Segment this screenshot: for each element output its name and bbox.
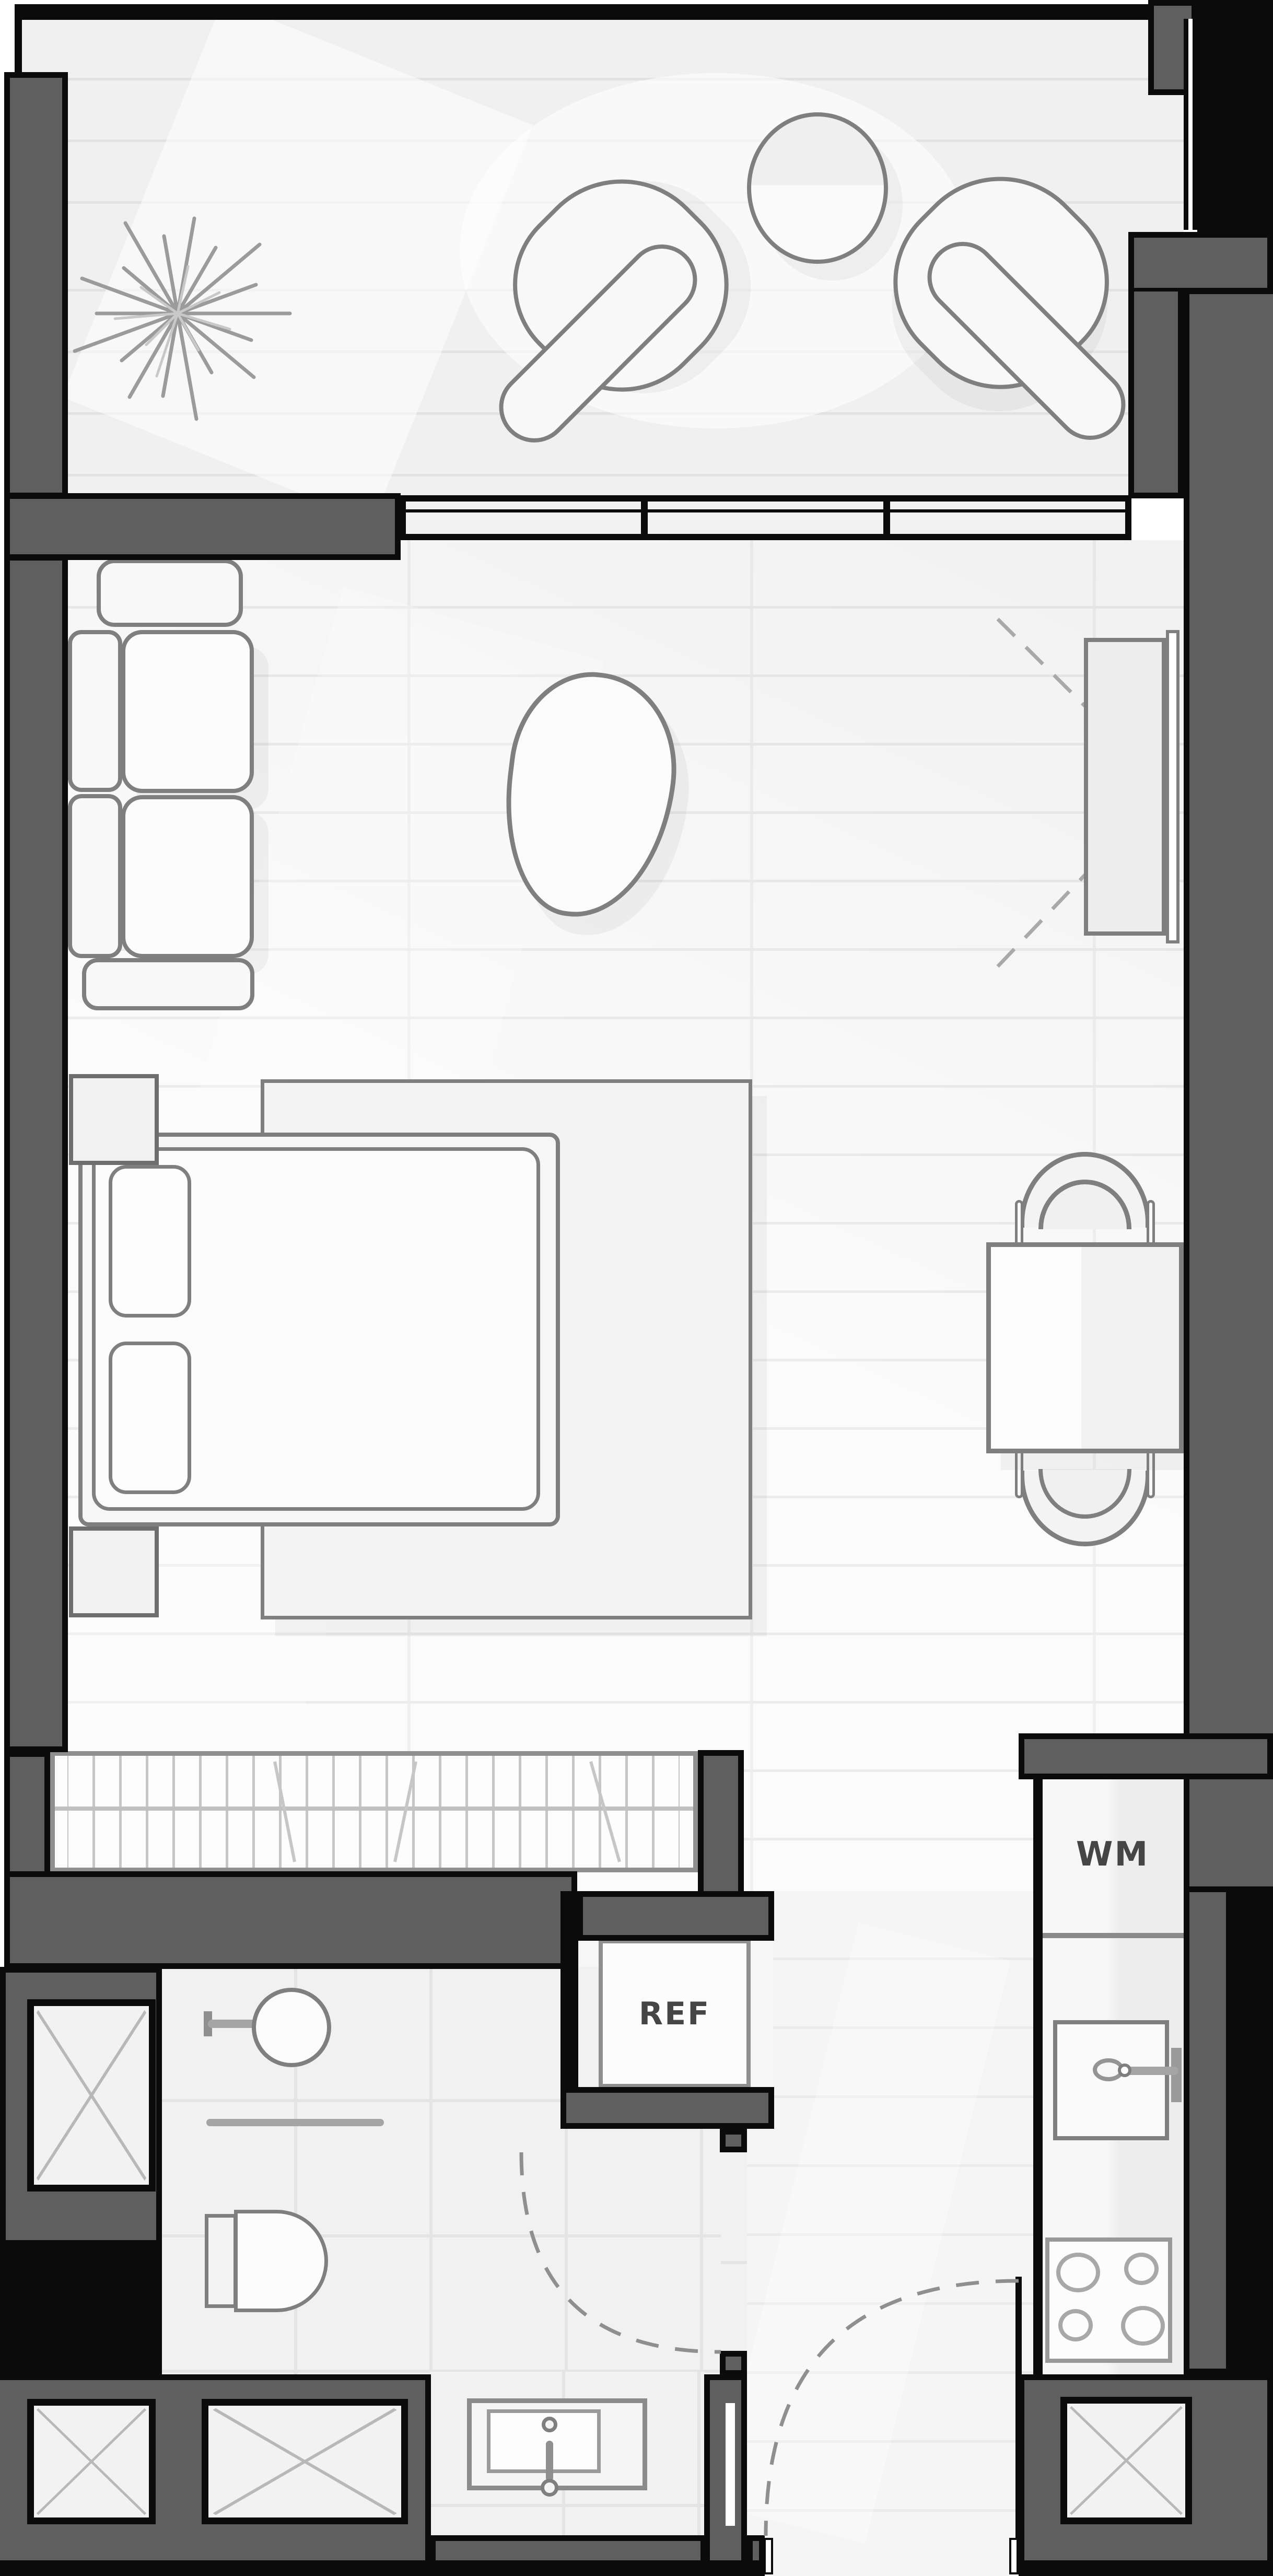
- entry-door-swing-arc: [763, 2278, 1022, 2539]
- nightstand-bottom: [69, 1526, 159, 1617]
- vanity-faucet-stem: [546, 2441, 553, 2481]
- entry-door-jamb-left: [764, 2538, 773, 2574]
- wall-balcony-right: [1128, 292, 1184, 498]
- balcony-top-rail: [15, 4, 1148, 20]
- bottom-edge-right: [1019, 2560, 1273, 2576]
- stove-burner-2: [1124, 2253, 1159, 2285]
- dining-chair-bottom-armrest-right: [1147, 1446, 1155, 1498]
- nightstand-top: [69, 1074, 159, 1165]
- cabinet-front-panel: [1166, 630, 1179, 943]
- wall-kitchen-top: [1019, 1733, 1273, 1779]
- round-basin-sink: [252, 1988, 331, 2067]
- shaft-bottom-b: [202, 2399, 408, 2524]
- wall-wardrobe-right: [698, 1750, 744, 1915]
- wall-balcony-left: [4, 72, 68, 498]
- wall-fridge-niche-bottom: [560, 2087, 774, 2129]
- dining-table: [986, 1242, 1184, 1453]
- vanity-drain: [542, 2417, 557, 2432]
- dining-chair-bottom-armrest-left: [1015, 1446, 1023, 1498]
- window-panel-1: [406, 502, 641, 534]
- sofa-seat-cushion-2: [121, 795, 254, 958]
- sofa-back-cushion-2: [68, 794, 122, 958]
- bed-pillow-top: [109, 1165, 191, 1318]
- window-panel-3: [890, 502, 1125, 534]
- balcony-glass-rail: [1184, 19, 1197, 230]
- kitchen-counter-divider: [1042, 1933, 1184, 1938]
- wall-kitchen-right: [1184, 1892, 1232, 2374]
- cabinet-body: [1084, 638, 1166, 936]
- kitchen-faucet-tip: [1118, 2064, 1131, 2077]
- shaft-left-wall: [27, 1999, 156, 2192]
- sofa-seat-cushion-1: [121, 630, 254, 793]
- left-black-void: [0, 2240, 158, 2375]
- shaft-bottom-a: [27, 2399, 156, 2524]
- sofa-armrest-bottom: [82, 958, 254, 1010]
- vanity-faucet-knob: [541, 2479, 558, 2497]
- stove-burner-1: [1056, 2253, 1100, 2292]
- wall-right-band: [1128, 232, 1273, 294]
- sofa-back-cushion-1: [68, 630, 122, 792]
- balcony-side-table: [747, 112, 888, 264]
- washing-machine-label: WM: [1042, 1792, 1184, 1917]
- floor-plan: REF WM: [0, 0, 1273, 2576]
- stove-burner-3: [1058, 2309, 1093, 2341]
- wall-right-main: [1184, 288, 1273, 1892]
- stove-burner-4: [1121, 2306, 1165, 2346]
- wall-left-main: [4, 555, 68, 1752]
- wall-bathroom-top: [4, 1871, 577, 1969]
- toilet-tank: [205, 2214, 237, 2308]
- kitchen-faucet: [1124, 2067, 1178, 2075]
- sofa-armrest-top: [97, 559, 243, 627]
- balcony-window-band: [400, 495, 1131, 540]
- wardrobe-hanger-slants: [50, 1751, 698, 1872]
- kitchen-faucet-mount: [1171, 2048, 1182, 2102]
- plant-icon: [63, 193, 293, 434]
- refrigerator-label: REF: [599, 1939, 751, 2088]
- bottom-edge-left: [0, 2560, 764, 2576]
- window-panel-2: [648, 502, 883, 534]
- bathroom-door-swing-arc: [517, 2148, 725, 2356]
- bed-pillow-bottom: [109, 1342, 191, 1494]
- wall-fridge-niche-top: [577, 1891, 774, 1941]
- wall-window-left: [4, 493, 401, 560]
- entry-door-jamb-right: [1009, 2538, 1019, 2574]
- balcony-left-rail: [15, 4, 22, 77]
- shaft-kitchen: [1060, 2397, 1192, 2524]
- towel-rail: [206, 2119, 384, 2126]
- divider-slot: [726, 2403, 735, 2526]
